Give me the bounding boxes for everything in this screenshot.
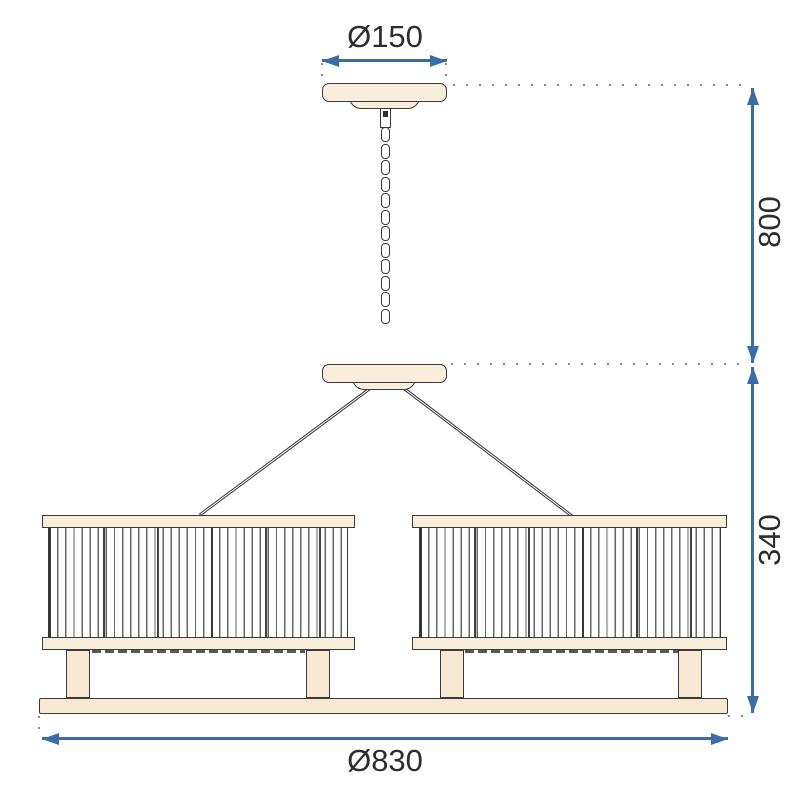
chain-link [381,226,390,241]
left-shade-bottom-rim [42,637,355,650]
dotted-reference-top [453,84,748,86]
dotted-extension-base-left [38,716,40,736]
connector-pin [383,111,388,117]
chain-link [381,193,390,208]
suspension-height-label: 800 [753,177,787,267]
support-leg [66,650,90,698]
dotted-reference-bottom-right [728,715,750,717]
chain-link [381,243,390,258]
canopy-diameter-arrow [322,59,447,62]
total-diameter-arrow [42,737,728,740]
right-shade-hem [465,650,678,653]
chain-link [381,177,390,192]
left-shade-top-rim [42,515,355,528]
left-support-arm [199,387,371,516]
chain-link [381,309,390,324]
chain-link [381,160,390,175]
center-hub [322,364,447,383]
bottom-base-bar [39,698,728,714]
right-shade-slats [419,528,721,637]
chain-link [381,127,390,142]
support-leg [440,650,464,698]
total-diameter-label: Ø830 [325,744,445,778]
shade-height-label: 340 [753,495,787,585]
hanging-chain [380,127,391,363]
drawing-canvas: Ø150 800 340 Ø830 [0,0,812,800]
ceiling-canopy [322,83,447,102]
chain-link [381,276,390,291]
chain-link [381,144,390,159]
right-support-arm [403,387,573,517]
dotted-reference-middle [451,363,748,365]
right-shade-bottom-rim [412,637,727,650]
chain-link [381,259,390,274]
support-leg [678,650,702,698]
right-shade-top-rim [412,515,727,528]
left-shade-hem [92,650,305,653]
canopy-diameter-label: Ø150 [325,20,445,54]
left-shade-slats [48,528,348,637]
chain-link [381,210,390,225]
chain-link [381,292,390,307]
support-leg [306,650,330,698]
chain-connector [380,108,391,128]
